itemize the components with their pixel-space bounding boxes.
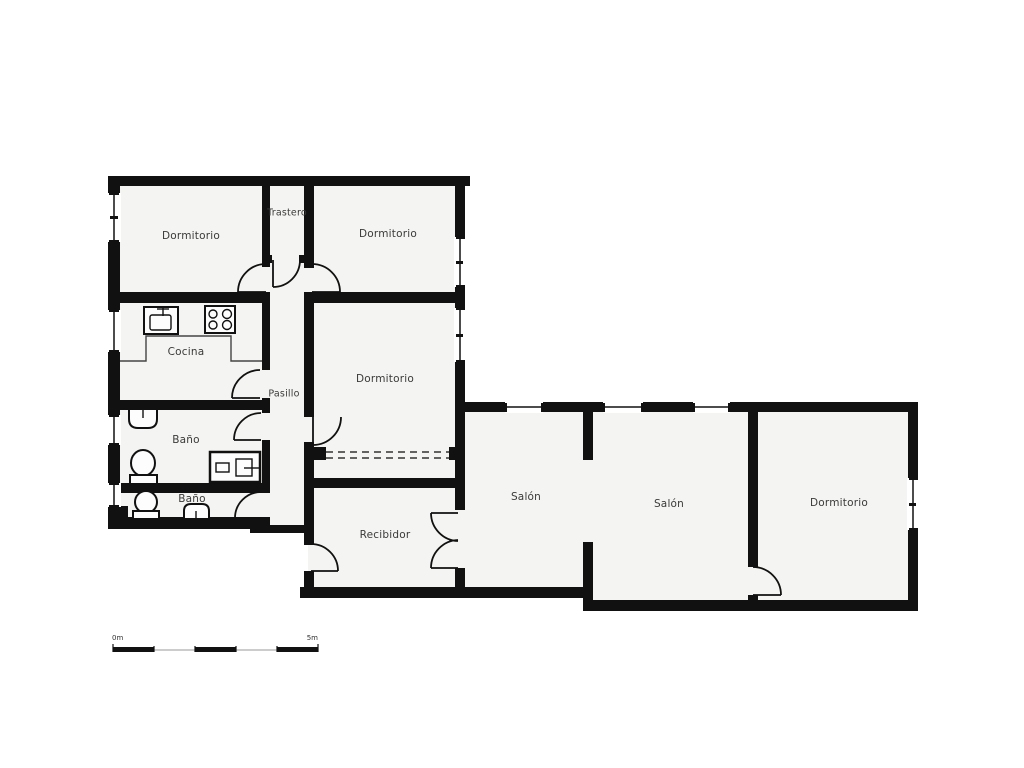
wall [304,292,465,303]
wall [262,176,270,267]
wall [304,571,314,598]
window [107,414,121,446]
wall [108,400,270,410]
wall [583,542,593,611]
bathroom-sink-icon [129,410,157,428]
toilet-icon [130,450,157,484]
wall [748,402,758,567]
bathroom-sink-icon [184,504,209,518]
room-label-salon-1: Salón [511,491,541,503]
floor-plan-drawing [0,0,1024,768]
wall [748,595,758,611]
room-label-trastero: Trastero [267,208,307,219]
window [692,401,731,413]
room-label-bano-1: Baño [172,434,200,446]
window [454,307,466,363]
wall [304,442,314,478]
shower-unit-icon [210,452,260,482]
wall-stub [449,447,462,460]
stove-icon [205,306,235,333]
window [107,482,121,508]
wall [304,478,314,545]
wall-stub [314,447,326,460]
wall [304,176,314,268]
room-floors [115,181,913,605]
wall [262,398,270,413]
room-label-dormitorio-top-right: Dormitorio [359,228,417,240]
wall [306,478,465,488]
wall [262,518,270,533]
scale-bar [113,644,318,652]
window [454,236,466,288]
wall [455,412,465,510]
room-label-recibidor: Recibidor [360,529,411,541]
room-dormitorio-middle-floor [310,298,460,483]
wall [108,176,470,186]
wall [583,402,593,460]
window [602,401,644,413]
wall [304,303,314,417]
room-label-bano-2: Baño [178,493,206,505]
room-label-pasillo: Pasillo [268,389,299,400]
wall [455,568,465,598]
room-label-dormitorio-top-left: Dormitorio [162,230,220,242]
toilet-icon [133,491,159,519]
floor-plan-page: Dormitorio Trastero Dormitorio Cocina Pa… [0,0,1024,768]
wall [455,176,465,412]
wall [300,587,593,598]
room-label-dormitorio-right: Dormitorio [810,497,868,509]
window [107,309,121,353]
window [907,477,919,531]
wall [262,303,270,370]
room-label-dormitorio-middle: Dormitorio [356,373,414,385]
room-label-cocina: Cocina [168,346,205,358]
wall [262,440,270,493]
window [107,192,121,243]
room-label-salon-2: Salón [654,498,684,510]
scale-start-label: 0m [112,634,123,642]
wall [108,292,270,303]
kitchen-sink-icon [144,307,178,334]
window [504,401,544,413]
scale-end-label: 5m [307,634,318,642]
